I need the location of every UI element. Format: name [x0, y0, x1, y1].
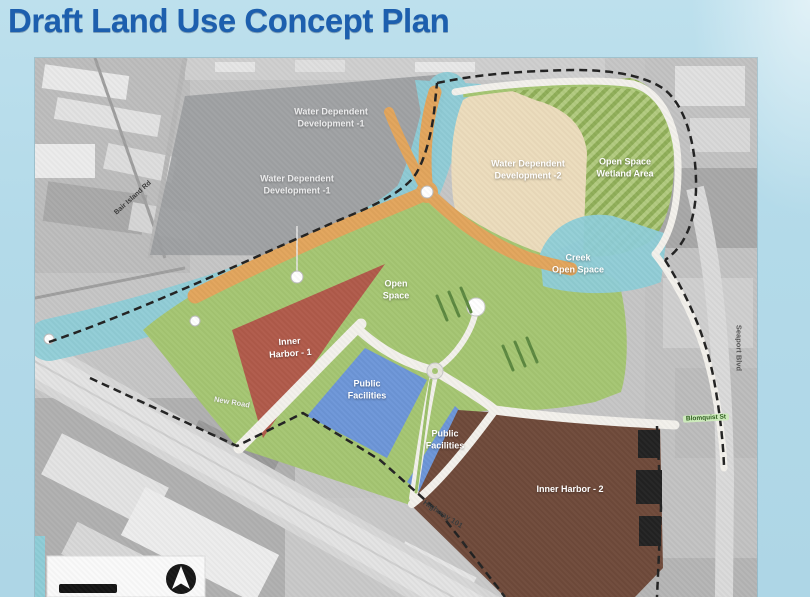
- map-graphic: [35, 58, 757, 597]
- dark-buildings: [636, 430, 662, 546]
- label-public-facilities-1: Public Facilities: [348, 378, 387, 401]
- label-water-dependent-1b: Water Dependent Development -1: [260, 173, 334, 196]
- label-open-space-wetland: Open Space Wetland Area: [596, 156, 653, 179]
- label-inner-harbor-2: Inner Harbor - 2: [536, 484, 603, 496]
- page-title: Draft Land Use Concept Plan: [8, 2, 449, 40]
- label-open-space: Open Space: [383, 278, 410, 301]
- label-water-dependent-2: Water Dependent Development -2: [491, 158, 565, 181]
- label-public-facilities-2: Public Facilities: [426, 428, 465, 451]
- label-seaport-blvd: Seaport Blvd: [735, 325, 744, 371]
- land-use-map: Water Dependent Development -1 Water Dep…: [35, 58, 757, 597]
- map-legend: [47, 556, 205, 597]
- label-creek-open-space: Creek Open Space: [552, 252, 604, 275]
- presentation-slide: Draft Land Use Concept Plan: [0, 0, 810, 597]
- label-inner-harbor-1: Inner Harbor - 1: [268, 335, 312, 361]
- water-edge-strip: [35, 536, 45, 597]
- scale-bar: [59, 584, 117, 593]
- label-water-dependent-1a: Water Dependent Development -1: [294, 106, 368, 129]
